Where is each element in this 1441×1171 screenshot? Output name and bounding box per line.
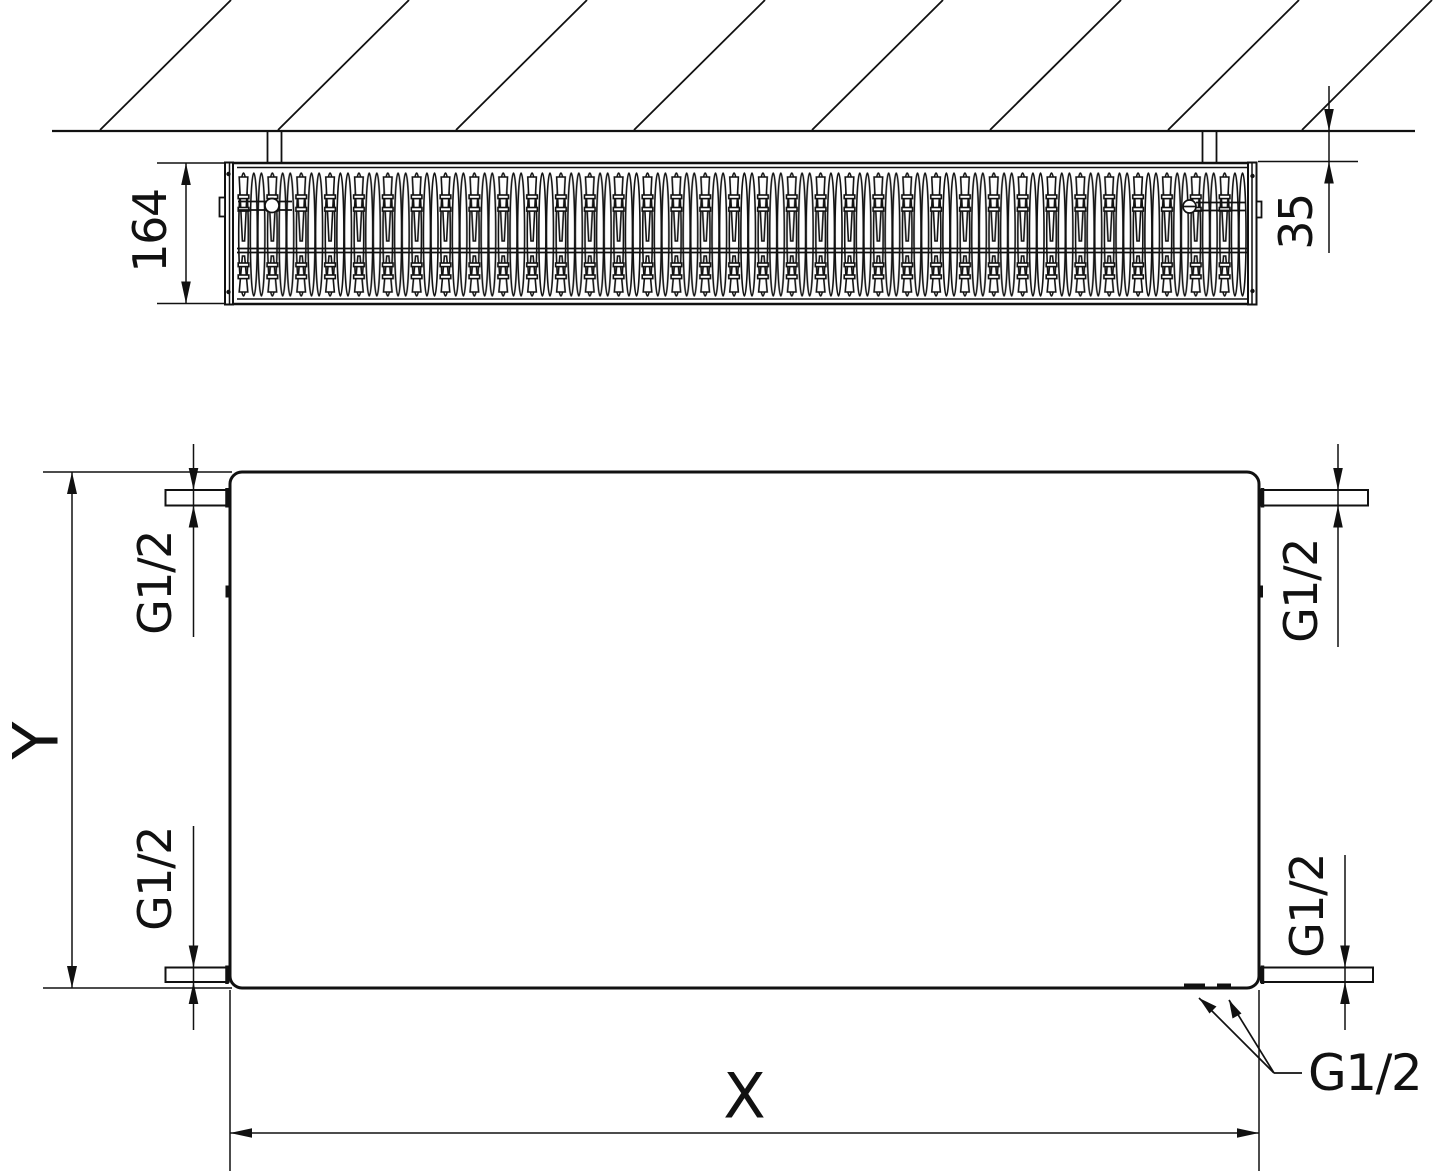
wall-hatching bbox=[100, 0, 1432, 130]
side-tab-left bbox=[220, 198, 226, 217]
port-stub-bottom-right bbox=[1261, 966, 1373, 985]
edge-mark-left bbox=[226, 586, 231, 598]
port-top-left-label: G1/2 bbox=[128, 531, 182, 635]
technical-drawing-canvas: 164 35 G1/2 G1/2 bbox=[0, 0, 1441, 1171]
wall-bracket-right bbox=[1203, 131, 1217, 163]
port-stub-bottom-left bbox=[166, 966, 229, 985]
leader-bottom-ports: G1/2 bbox=[1184, 984, 1421, 1103]
end-cap-left bbox=[220, 163, 234, 305]
dimension-width: X bbox=[230, 990, 1259, 1171]
port-bottom-left-label: G1/2 bbox=[128, 827, 182, 931]
dimension-port-bottom-left: G1/2 bbox=[128, 826, 198, 1030]
dimension-port-bottom-right: G1/2 bbox=[1280, 854, 1350, 1030]
radiator-front-panel bbox=[230, 472, 1259, 988]
wall-bracket-left bbox=[268, 131, 282, 163]
width-value: X bbox=[723, 1060, 764, 1133]
convector-fins bbox=[237, 171, 1247, 298]
bottom-ports-label: G1/2 bbox=[1308, 1044, 1421, 1102]
end-cap-right bbox=[1248, 163, 1262, 305]
dimension-port-top-right: G1/2 bbox=[1274, 444, 1343, 647]
dimension-depth: 164 bbox=[123, 163, 224, 304]
port-bottom-right-label: G1/2 bbox=[1280, 854, 1334, 958]
dimension-height: Y bbox=[0, 472, 232, 988]
depth-value: 164 bbox=[123, 189, 177, 272]
radiator-dimension-drawing: 164 35 G1/2 G1/2 bbox=[0, 0, 1441, 1171]
dimension-port-top-left: G1/2 bbox=[128, 444, 198, 637]
dimension-wall-distance: 35 bbox=[1258, 86, 1358, 253]
edge-mark-right bbox=[1259, 586, 1264, 598]
port-top-right-label: G1/2 bbox=[1274, 539, 1328, 643]
height-value: Y bbox=[0, 721, 73, 760]
side-tab-right bbox=[1257, 202, 1262, 218]
port-stub-top-right bbox=[1261, 488, 1368, 508]
wall-distance-value: 35 bbox=[1269, 194, 1323, 250]
radiator-top-view bbox=[220, 163, 1262, 305]
port-stub-top-left bbox=[166, 488, 229, 508]
